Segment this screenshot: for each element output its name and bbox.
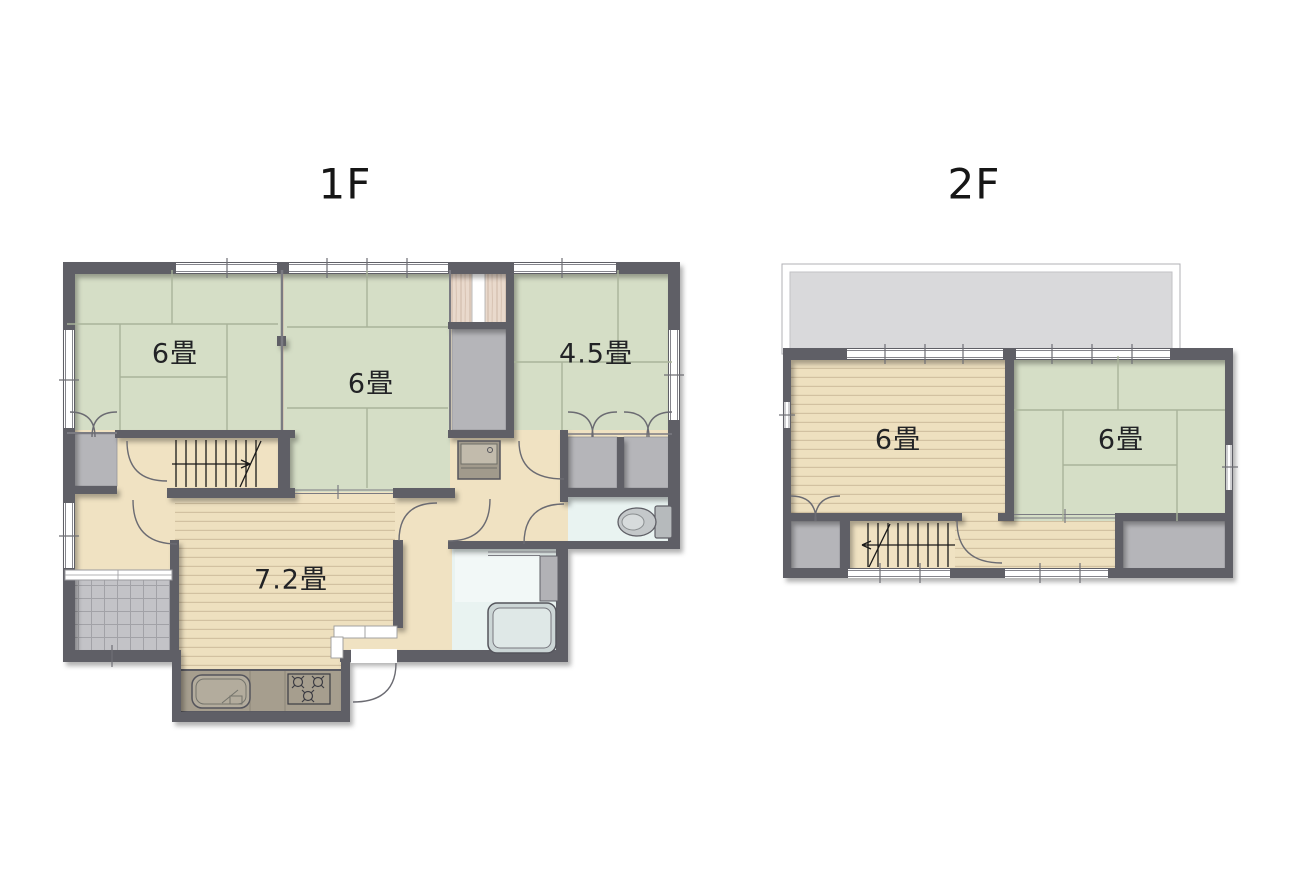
closet-2f-se [1123,521,1225,570]
kitchen-counter [180,670,342,712]
closet-ne-2 [624,437,672,488]
floorplan-2f [779,264,1238,583]
room-1f-dining-kitchen-floor [175,503,395,628]
floorplan-1f [59,258,684,722]
room-2f-tatami [1014,356,1225,521]
floorplan-canvas: 1F 2F 6畳 6畳 4.5畳 7.2畳 6畳 6畳 [0,0,1297,879]
washstand [458,441,500,479]
room-2f-western [791,356,1005,521]
balcony [782,264,1180,354]
floorplan-drawing [0,0,1297,879]
closet-ne-1 [568,437,617,488]
genkan-tile-entrance [67,578,172,652]
closet-center [452,329,506,430]
room-1f-tatami-nw [67,266,282,430]
hallway-2f [955,521,1123,570]
kitchen-sink [192,675,250,708]
closet-2f-sw [791,521,840,570]
toilet [618,506,672,538]
room-1f-tatami-ne [510,266,672,430]
